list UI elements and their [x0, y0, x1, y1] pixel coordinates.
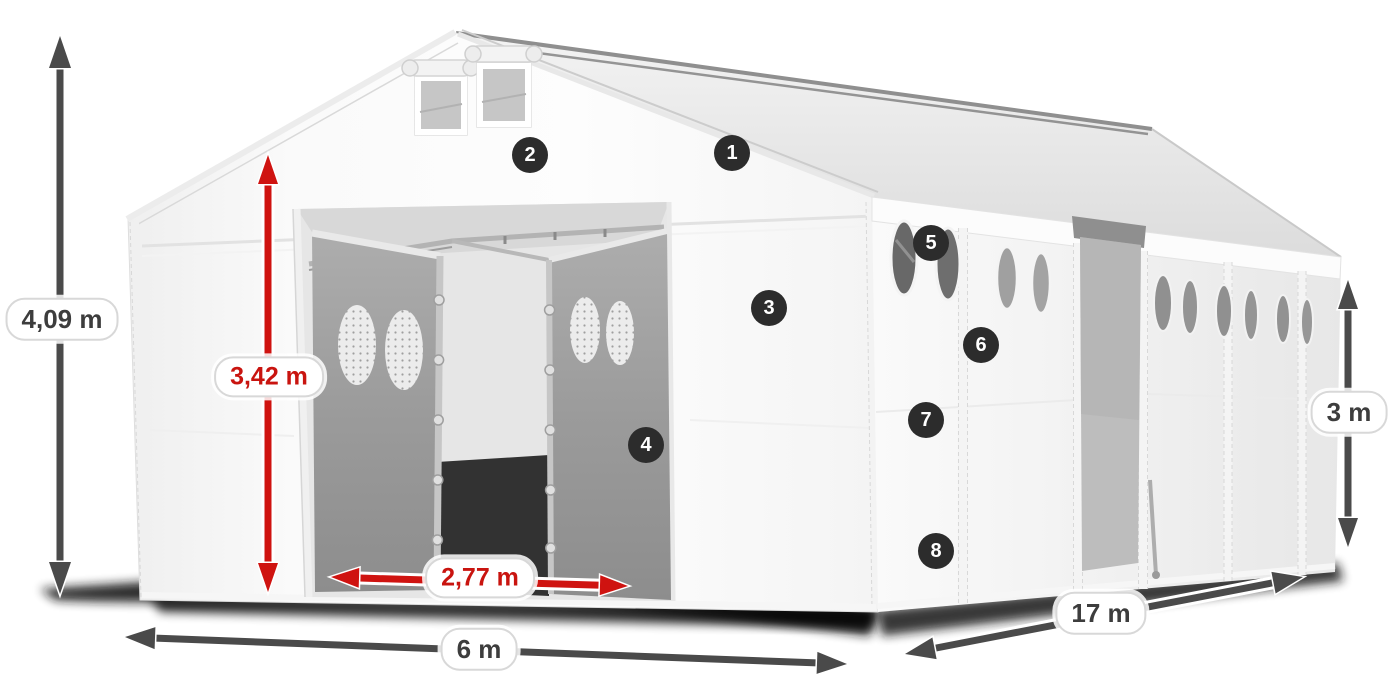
entrance-right-panel — [545, 231, 671, 600]
feature-badge-5: 5 — [913, 225, 949, 261]
dimension-label-length: 17 m — [1055, 592, 1146, 635]
feature-badge-1: 1 — [714, 135, 750, 171]
feature-badge-6: 6 — [963, 327, 999, 363]
feature-badge-2: 2 — [512, 137, 548, 173]
feature-badge-7: 7 — [908, 402, 944, 438]
feature-badge-3: 3 — [751, 290, 787, 326]
tent-dimension-diagram: 1 2 3 4 5 6 7 8 4,09 m 3,42 m 2,77 m 6 m… — [0, 0, 1400, 700]
feature-badge-8: 8 — [918, 533, 954, 569]
feature-badge-4: 4 — [628, 427, 664, 463]
dimension-label-total-height: 4,09 m — [6, 298, 119, 341]
dimension-label-side-height: 3 m — [1311, 391, 1388, 434]
tent-illustration — [0, 0, 1400, 700]
entrance-left-panel — [312, 233, 444, 592]
dimension-label-entrance-width: 2,77 m — [425, 557, 535, 598]
dimension-label-entrance-height: 3,42 m — [214, 356, 324, 397]
dimension-label-width: 6 m — [441, 628, 518, 671]
